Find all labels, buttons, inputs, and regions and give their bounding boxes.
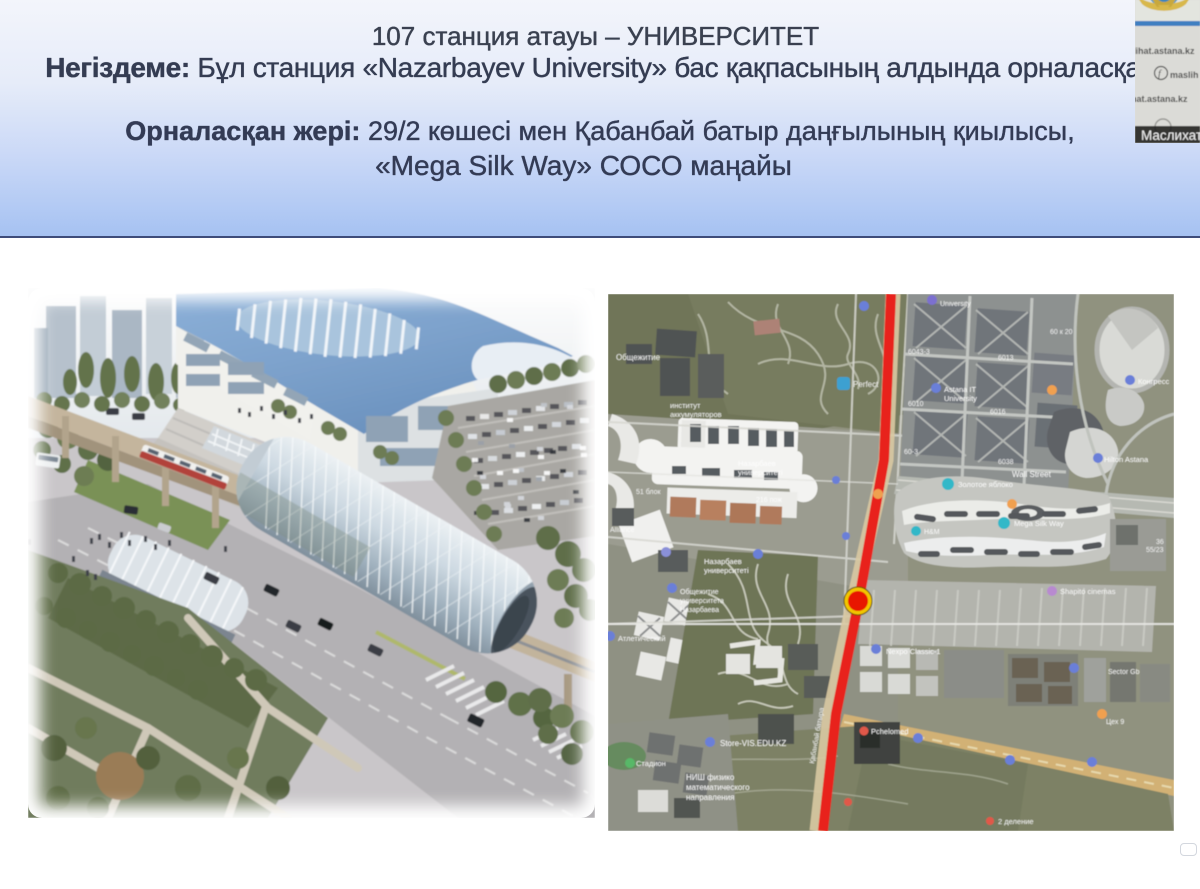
svg-text:НИШ физико: НИШ физико <box>686 773 735 782</box>
svg-text:36: 36 <box>1156 539 1164 546</box>
svg-text:институт: институт <box>670 401 701 410</box>
svg-text:направления: направления <box>686 793 735 802</box>
svg-text:аккумуляторов: аккумуляторов <box>670 410 722 419</box>
svg-text:университеті: университеті <box>738 468 783 477</box>
svg-text:University: University <box>944 394 977 403</box>
svg-text:6016: 6016 <box>990 409 1006 416</box>
svg-text:55/23: 55/23 <box>1146 547 1164 554</box>
svg-text:Цех 9: Цех 9 <box>1106 719 1124 726</box>
svg-text:Sector Gb: Sector Gb <box>1108 669 1140 676</box>
svg-text:Nexpo Classic-1: Nexpo Classic-1 <box>886 647 941 656</box>
svg-text:Золотое яблоко: Золотое яблоко <box>958 480 1013 489</box>
svg-text:6043-3: 6043-3 <box>908 349 930 356</box>
svg-text:6010: 6010 <box>908 401 924 408</box>
svg-text:lihat.astana.kz: lihat.astana.kz <box>1135 46 1195 56</box>
svg-text:Конгресс: Конгресс <box>1138 377 1170 386</box>
svg-text:51 блок: 51 блок <box>636 488 661 496</box>
svg-text:Назарбаева: Назарбаева <box>680 606 719 614</box>
svg-text:Назарбаев: Назарбаев <box>704 557 742 566</box>
svg-text:University: University <box>940 301 971 308</box>
svg-text:Общежитие: Общежитие <box>616 353 661 362</box>
svg-text:университета: университета <box>680 598 724 605</box>
svg-text:6013: 6013 <box>998 355 1014 362</box>
svg-text:университеті: университеті <box>704 566 749 575</box>
svg-text:2 деление: 2 деление <box>998 817 1034 826</box>
svg-text:Perfect: Perfect <box>853 380 879 389</box>
svg-text:Общежитие: Общежитие <box>680 588 719 596</box>
svg-text:Атлетический: Атлетический <box>618 634 666 643</box>
svg-text:Alliance: Alliance <box>610 527 635 534</box>
svg-text:maslih: maslih <box>1170 70 1199 80</box>
svg-text:Назарбаев: Назарбаев <box>738 459 776 468</box>
svg-text:Pchelomed: Pchelomed <box>871 727 909 736</box>
svg-text:Стадион: Стадион <box>636 759 666 768</box>
svg-text:hat.astana.kz: hat.astana.kz <box>1135 94 1188 104</box>
svg-text:Н&М: Н&М <box>924 529 940 536</box>
svg-text:Wall Street: Wall Street <box>1012 470 1052 479</box>
svg-text:Mega Silk Way: Mega Silk Way <box>1014 519 1064 528</box>
svg-text:математического: математического <box>686 783 750 792</box>
svg-text:216 пож: 216 пож <box>756 497 782 504</box>
svg-text:Astana IT: Astana IT <box>944 385 977 394</box>
svg-text:Store-VIS.EDU.KZ: Store-VIS.EDU.KZ <box>720 739 786 748</box>
svg-text:Shapito cinemas: Shapito cinemas <box>1060 587 1116 596</box>
svg-text:6038: 6038 <box>998 459 1014 466</box>
svg-text:60-3: 60-3 <box>904 449 918 456</box>
svg-text:60 к 20: 60 к 20 <box>1050 329 1073 336</box>
svg-text:Маслихат: Маслихат <box>1141 128 1200 143</box>
svg-text:Hilton Astana: Hilton Astana <box>1104 455 1149 464</box>
